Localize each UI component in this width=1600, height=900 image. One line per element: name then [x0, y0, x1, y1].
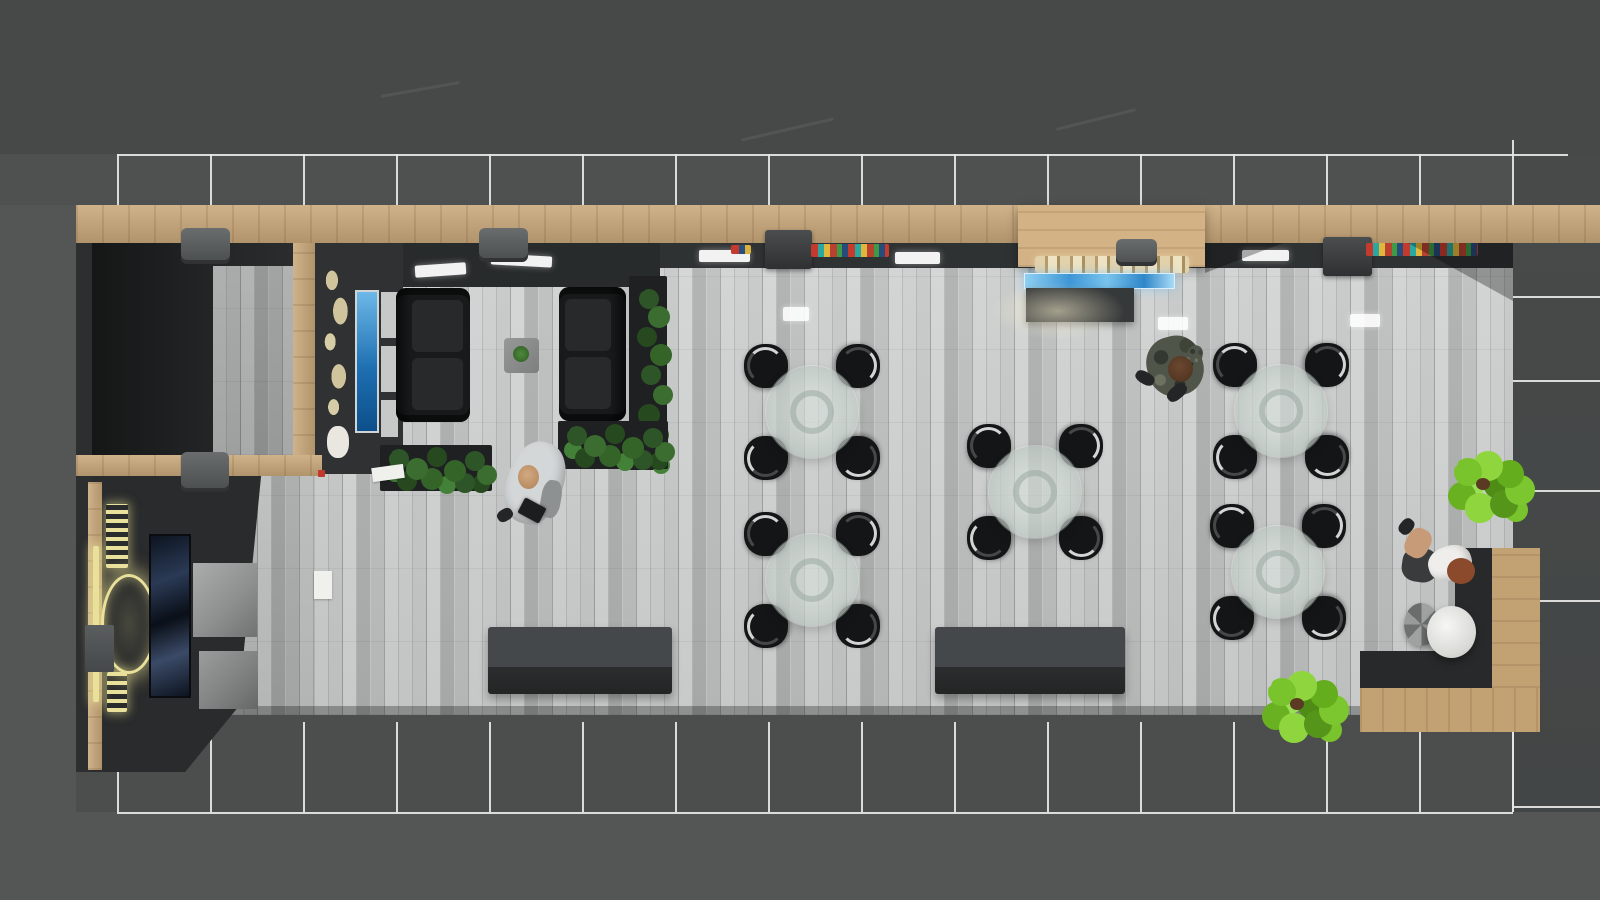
glass-frame-mullion	[1140, 154, 1142, 205]
tile-grout-line	[1513, 380, 1600, 382]
spotlight-fixture	[181, 452, 229, 492]
sofa	[559, 287, 626, 421]
wall-kiosk-box	[85, 625, 114, 672]
bench-wood-seat	[1360, 688, 1540, 732]
floorplan-render	[0, 0, 1600, 900]
alcove-floor	[213, 266, 302, 455]
glass-frame-mullion	[210, 154, 212, 205]
spotlight-fixture	[479, 228, 528, 262]
tile-grout-line	[1513, 490, 1600, 492]
merch-shelf-small	[731, 245, 751, 254]
potted-plant	[1260, 676, 1272, 688]
glass-frame-mullion	[675, 722, 677, 812]
glass-frame-mullion	[1326, 722, 1328, 812]
service-counter	[488, 627, 672, 694]
coffee-machine	[765, 230, 812, 269]
spotlight-fixture	[1116, 239, 1157, 266]
glass-dining-table	[1235, 365, 1327, 457]
floor-light-reflection	[1158, 317, 1188, 330]
glass-frame-mullion	[1419, 154, 1421, 205]
extinguisher-dot	[318, 470, 325, 477]
planter-leaves	[382, 446, 392, 456]
glass-frame-mullion	[861, 154, 863, 205]
logo-text-bottom	[107, 672, 127, 712]
table-plant	[513, 346, 529, 362]
glass-dining-table	[766, 534, 858, 626]
tile-grout-line	[1513, 806, 1600, 808]
planter-leaves	[636, 282, 646, 292]
glass-frame-mullion	[1326, 154, 1328, 205]
coffee-machine	[1323, 237, 1372, 276]
tile-grout-line	[1512, 722, 1514, 812]
glass-frame-mullion	[861, 722, 863, 812]
glass-frame-mullion	[117, 154, 119, 205]
glass-frame-mullion	[1512, 154, 1514, 205]
glass-frame-mullion	[1047, 722, 1049, 812]
storage-cube	[199, 651, 258, 709]
spotlight-fixture	[181, 228, 230, 264]
counter-glow	[990, 282, 1125, 340]
logo-side-bar	[93, 546, 99, 702]
exterior-top-band	[0, 0, 1600, 154]
sofa	[396, 288, 470, 422]
bottom-pavement	[76, 712, 1513, 812]
glass-frame-mullion	[768, 154, 770, 205]
map-art-fragment	[327, 426, 349, 458]
glass-frame-mullion	[396, 154, 398, 205]
glass-frame-mullion	[489, 154, 491, 205]
glass-frame-mullion	[954, 722, 956, 812]
storage-cube	[199, 487, 257, 546]
glass-frame-mullion	[582, 722, 584, 812]
logo-text-top	[106, 504, 128, 568]
glass-frame-mullion	[303, 722, 305, 812]
white-pouf	[1427, 606, 1476, 658]
man-head	[518, 465, 539, 489]
glass-frame-mullion	[1140, 722, 1142, 812]
glass-dining-table	[1232, 526, 1324, 618]
glass-frame-mullion	[303, 154, 305, 205]
framed-picture	[149, 534, 191, 698]
glass-frame-mullion	[396, 722, 398, 812]
storage-cube	[193, 563, 257, 637]
floor-edge-shadow	[230, 706, 1513, 715]
tile-grout-line	[1513, 296, 1600, 298]
merch-shelf	[811, 244, 889, 257]
bread-display	[1035, 256, 1189, 273]
planter-box	[558, 421, 668, 469]
glass-walkway-band	[0, 154, 1600, 205]
glass-dining-table	[989, 446, 1081, 538]
glass-frame-mullion	[954, 154, 956, 205]
tv-screen	[355, 290, 379, 433]
camo-person-head	[1168, 356, 1193, 382]
paper-sheet	[314, 571, 332, 599]
glass-frame-mullion	[1047, 154, 1049, 205]
glass-frame-mullion	[1233, 722, 1235, 812]
glass-frame-mullion	[489, 722, 491, 812]
floor-light-reflection	[1350, 314, 1380, 327]
glass-frame-mullion	[675, 154, 677, 205]
bench-backrest	[1360, 651, 1492, 688]
ceiling-light	[895, 252, 940, 264]
glass-frame-mullion	[582, 154, 584, 205]
glass-dining-table	[766, 366, 858, 458]
wood-divider	[293, 243, 315, 462]
service-counter	[935, 627, 1125, 694]
tile-grout-line	[1512, 140, 1514, 154]
glass-frame-mullion	[1233, 154, 1235, 205]
glass-frame-mullion	[1419, 722, 1421, 812]
glass-frame-line-top	[117, 154, 1568, 156]
glass-frame-line-bottom	[117, 812, 1513, 814]
woman-hair	[1447, 558, 1475, 584]
planter-leaves	[560, 423, 570, 433]
glass-frame-mullion	[768, 722, 770, 812]
potted-plant	[1446, 456, 1458, 468]
floor-light-reflection	[783, 307, 809, 321]
